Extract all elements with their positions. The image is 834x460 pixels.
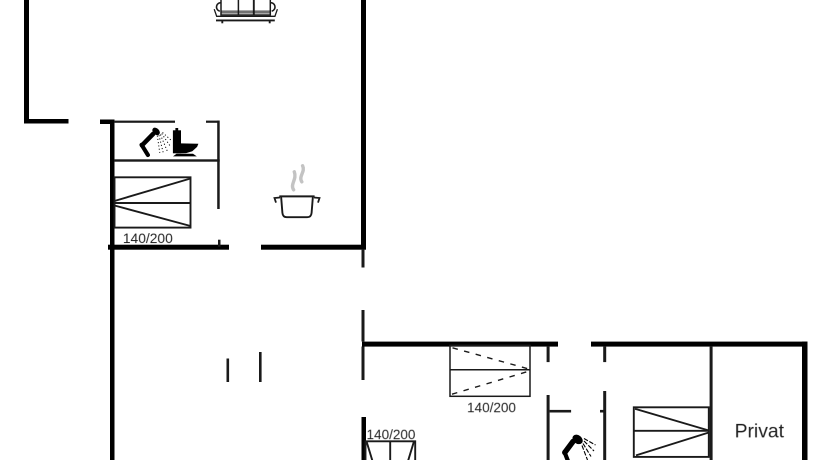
svg-text:140/200: 140/200 [367, 427, 416, 442]
svg-text:140/200: 140/200 [467, 400, 516, 415]
svg-text:140/200: 140/200 [123, 231, 173, 246]
svg-text:Privat: Privat [735, 421, 785, 442]
